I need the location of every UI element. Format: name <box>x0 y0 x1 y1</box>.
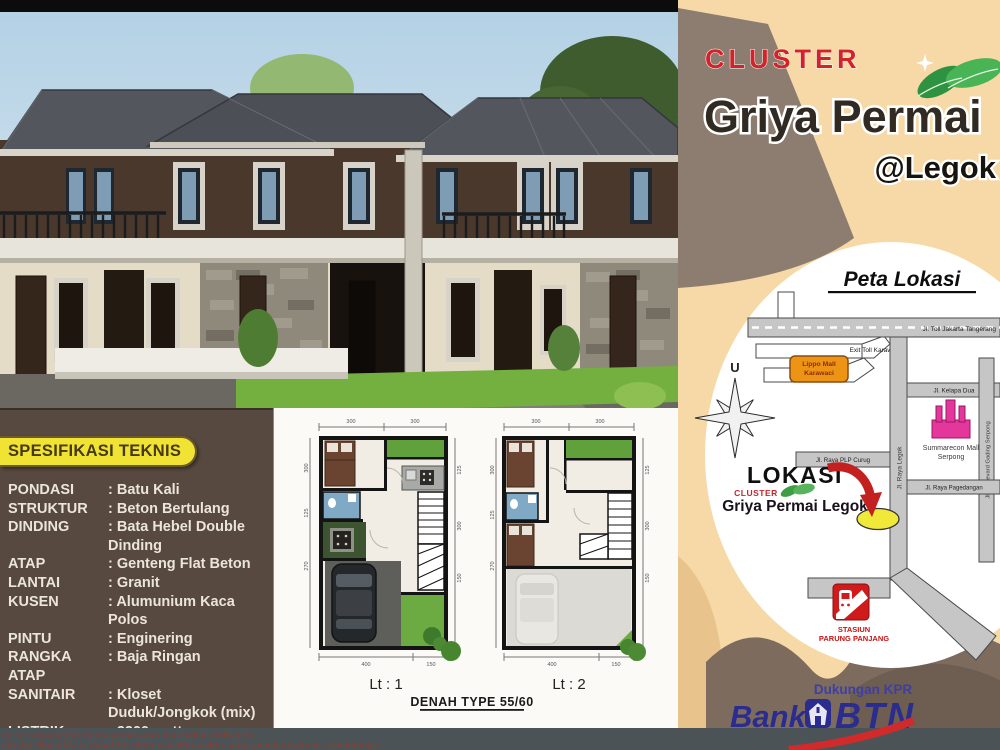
road-pagedangan: Jl. Raya Pagedangan <box>907 480 1000 494</box>
svg-text:400: 400 <box>547 662 556 668</box>
spec-row: STRUKTUR: Beton Bertulang <box>8 500 273 519</box>
toll-road: Jl. Toll Jakarta Tangerang <box>748 318 1000 337</box>
summarecon-mall-icon <box>932 400 970 438</box>
road-boulevard: Jl. Boulevard Gading Serpong <box>979 358 994 562</box>
spec-row: PINTU: Enginering <box>8 630 273 649</box>
floorplans: 300 300 300 125 270 125 300 150 400 150 <box>274 408 679 728</box>
fascia-left <box>0 149 334 156</box>
low-wall <box>55 348 348 372</box>
svg-text:150: 150 <box>457 573 463 582</box>
balcony-band <box>0 238 678 260</box>
svg-text:300: 300 <box>531 419 540 425</box>
spec-row: LANTAI: Granit <box>8 574 273 593</box>
bank-word: Bank <box>730 699 808 734</box>
station-label-2: PARUNG PANJANG <box>819 634 889 643</box>
spec-row: KUSEN: Alumunium Kaca Polos <box>8 593 273 630</box>
stairs-1 <box>418 492 444 590</box>
svg-text:Karawaci: Karawaci <box>804 370 834 377</box>
svg-text:150: 150 <box>611 662 620 668</box>
svg-text:Jl. Raya Legok: Jl. Raya Legok <box>897 446 904 490</box>
svg-text:300: 300 <box>410 419 419 425</box>
bank-brand: Dukungan KPR Bank BTN <box>678 670 1000 750</box>
right-panel-art: CLUSTER Griya Permai @Legok Peta Lokasi … <box>678 0 1000 750</box>
flyer: CLUSTER Griya Permai @Legok Peta Lokasi … <box>0 0 1000 750</box>
svg-text:Lippo Mall: Lippo Mall <box>802 361 836 368</box>
map-title: Peta Lokasi <box>844 268 962 291</box>
svg-text:Serpong: Serpong <box>938 454 965 461</box>
svg-text:125: 125 <box>304 508 310 517</box>
fascia-mid <box>150 142 425 148</box>
svg-text:150: 150 <box>426 662 435 668</box>
cluster-label: CLUSTER <box>705 44 861 74</box>
svg-text:300: 300 <box>490 465 496 474</box>
top-black-bar <box>0 0 678 12</box>
site-marker <box>857 509 899 530</box>
toll-road-label: Jl. Toll Jakarta Tangerang <box>923 326 997 333</box>
floorplan-panel: 300 300 300 125 270 125 300 150 400 150 <box>273 408 678 728</box>
house-render-scene <box>0 0 678 430</box>
svg-text:300: 300 <box>457 521 463 530</box>
lower-roof-2 <box>507 569 631 646</box>
btn-logo-icon <box>805 699 831 728</box>
svg-text:Jl. Kelapa Dua: Jl. Kelapa Dua <box>934 388 975 395</box>
spec-row: ATAP: Genteng Flat Beton <box>8 555 273 574</box>
spec-panel: SPESIFIKASI TEKNIS PONDASI: Batu Kali ST… <box>0 408 273 728</box>
lokasi-cluster-label: CLUSTER <box>734 488 778 498</box>
svg-text:125: 125 <box>457 465 463 474</box>
svg-text:300: 300 <box>645 521 651 530</box>
svg-text:Jl. Raya Pagedangan: Jl. Raya Pagedangan <box>925 486 982 492</box>
svg-text:270: 270 <box>304 561 310 570</box>
carport-1 <box>325 561 401 646</box>
house-render <box>0 0 678 430</box>
svg-text:300: 300 <box>346 419 355 425</box>
location-tag: @Legok <box>874 150 996 185</box>
floorplan-1: 300 300 300 125 270 125 300 150 400 150 <box>304 419 463 668</box>
compass-label: U <box>730 360 739 375</box>
svg-text:400: 400 <box>361 662 370 668</box>
spec-list: PONDASI: Batu Kali STRUKTUR: Beton Bertu… <box>8 481 273 750</box>
spec-row: RANGKA ATAP: Baja Ringan <box>8 648 273 685</box>
spec-row: DINDING: Bata Hebel Double Dinding <box>8 518 273 555</box>
road-raya-legok: Jl. Raya Legok <box>890 337 907 580</box>
floor1-label: Lt : 1 <box>369 676 402 693</box>
station-label-1: STASIUN <box>838 625 870 634</box>
page-title: Griya Permai <box>704 91 982 142</box>
spec-heading: SPESIFIKASI TEKNIS <box>0 436 197 467</box>
right-panel: CLUSTER Griya Permai @Legok Peta Lokasi … <box>678 0 1000 750</box>
svg-text:300: 300 <box>304 463 310 472</box>
train-station-icon <box>833 584 869 620</box>
svg-text:Summarecon Mall: Summarecon Mall <box>923 445 980 452</box>
corner-column <box>405 150 422 378</box>
plan-type-label: DENAH TYPE 55/60 <box>410 695 533 709</box>
svg-text:125: 125 <box>645 465 651 474</box>
lokasi-name: Griya Permai Legok <box>722 498 868 515</box>
spec-row: SANITAIR: Kloset Duduk/Jongkok (mix) <box>8 686 273 723</box>
lippo-mall-marker: Lippo Mall Karawaci <box>790 356 848 382</box>
fascia-right <box>396 155 678 162</box>
floorplan-2: 300 300 300 125 270 125 300 150 400 150 <box>490 419 651 668</box>
svg-text:150: 150 <box>645 573 651 582</box>
svg-text:125: 125 <box>490 510 496 519</box>
spec-row: PONDASI: Batu Kali <box>8 481 273 500</box>
svg-text:300: 300 <box>595 419 604 425</box>
svg-text:270: 270 <box>490 561 496 570</box>
floor2-label: Lt : 2 <box>552 676 585 693</box>
